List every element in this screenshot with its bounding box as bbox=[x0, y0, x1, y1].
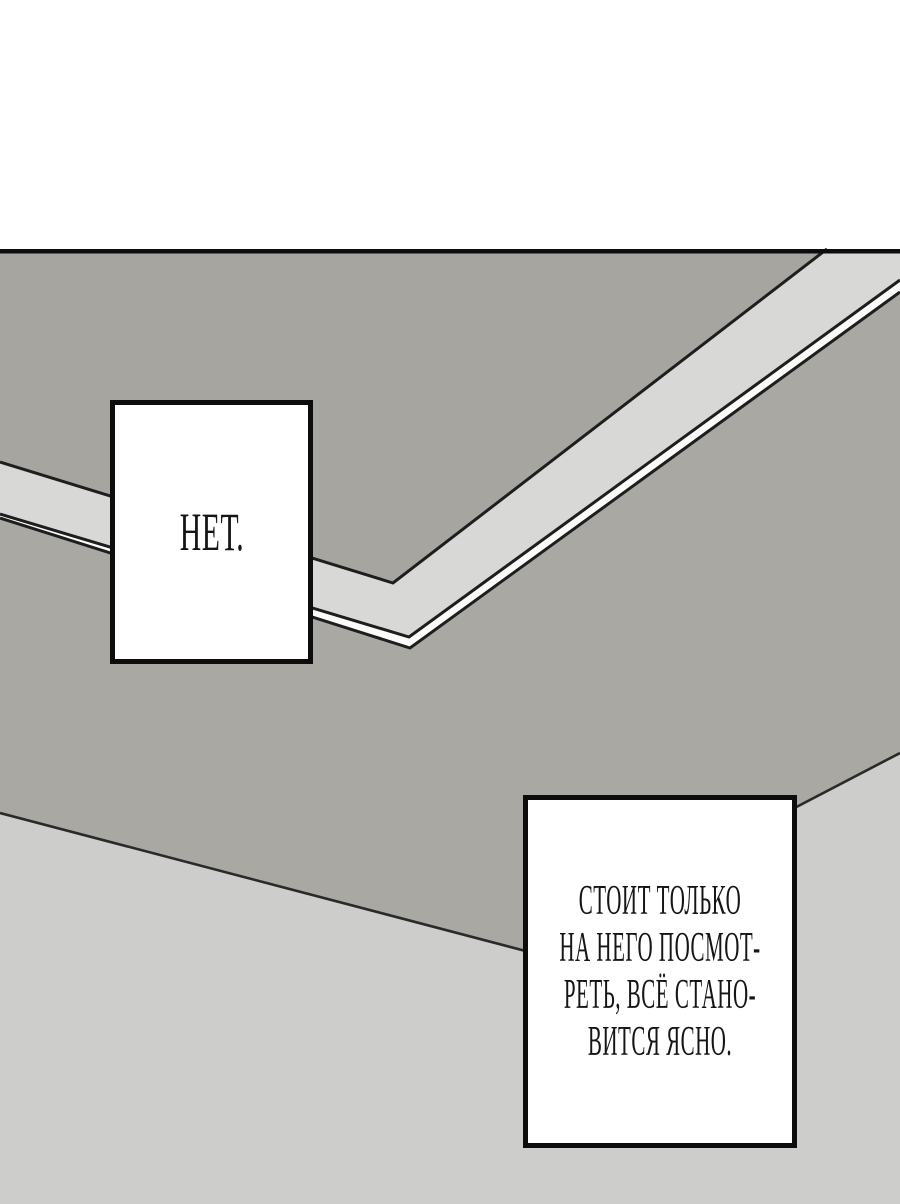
explanation-line-3: РЕТЬ, ВСЁ СТАНО- bbox=[559, 972, 760, 1019]
explanation-line-4: ВИТСЯ ЯСНО. bbox=[559, 1019, 760, 1066]
explanation-line-1: СТОИТ ТОЛЬКО bbox=[559, 878, 760, 925]
speech-bubble-explanation: СТОИТ ТОЛЬКО НА НЕГО ПОСМОТ- РЕТЬ, ВСЁ С… bbox=[523, 795, 797, 1148]
panel-top-border bbox=[0, 249, 900, 254]
speech-bubble-explanation-text: СТОИТ ТОЛЬКО НА НЕГО ПОСМОТ- РЕТЬ, ВСЁ С… bbox=[559, 878, 760, 1066]
speech-bubble-net: НЕТ. bbox=[110, 400, 313, 664]
speech-bubble-net-text: НЕТ. bbox=[179, 501, 243, 563]
explanation-line-2: НА НЕГО ПОСМОТ- bbox=[559, 925, 760, 972]
manga-page: НЕТ. СТОИТ ТОЛЬКО НА НЕГО ПОСМОТ- РЕТЬ, … bbox=[0, 0, 900, 1204]
